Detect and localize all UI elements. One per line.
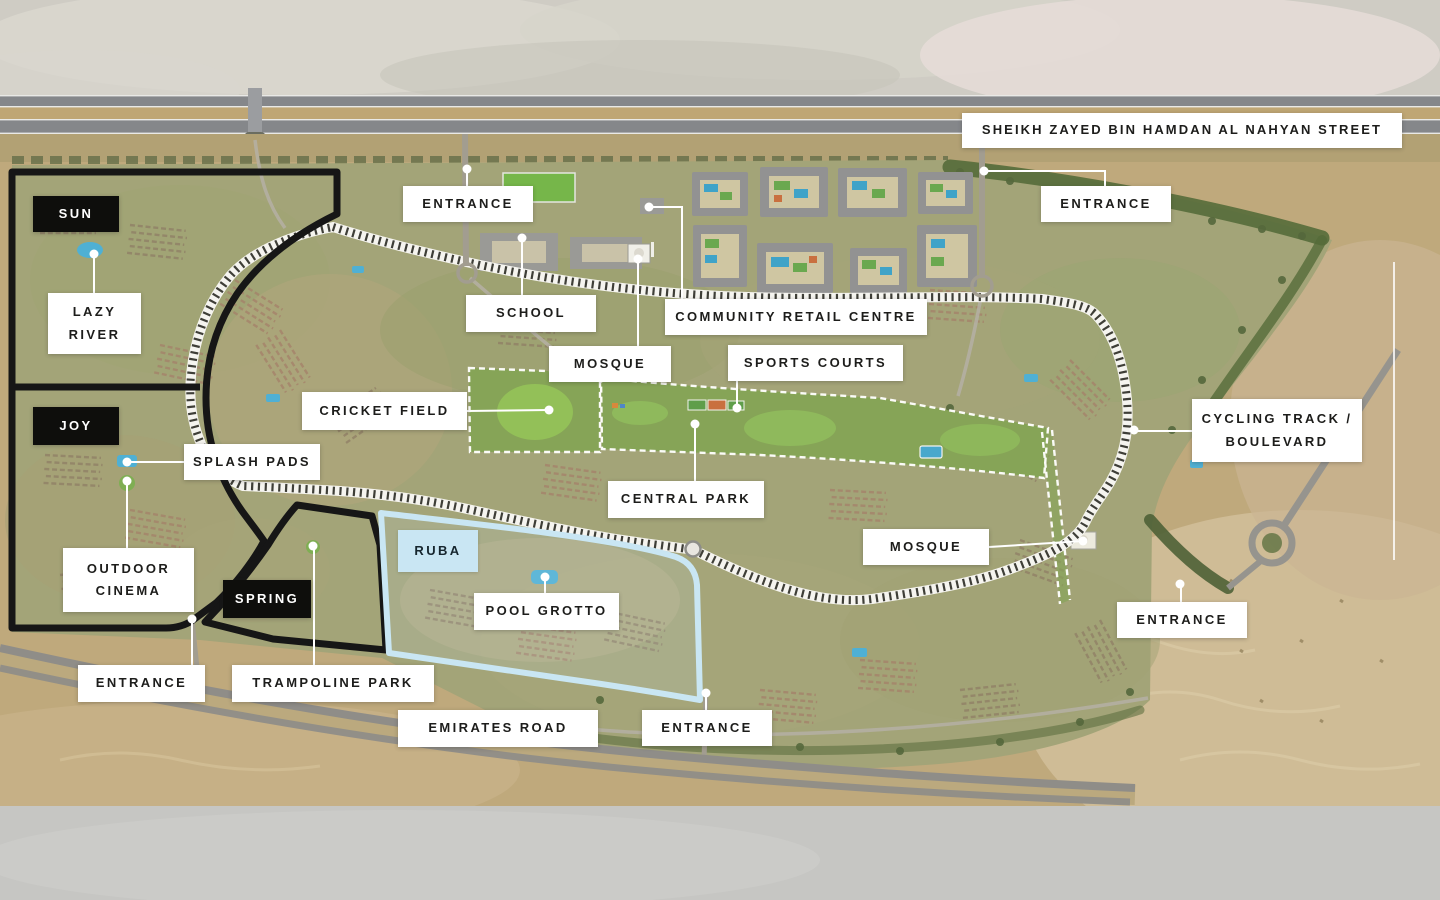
mosque-building-north (628, 242, 654, 263)
label-entrance-south: ENTRANCE (642, 710, 772, 746)
label-cricket-field: CRICKET FIELD (302, 392, 467, 430)
label-community-retail-centre: COMMUNITY RETAIL CENTRE (665, 299, 927, 335)
label-lazy-river: LAZY RIVER (48, 293, 141, 354)
label-central-park: CENTRAL PARK (608, 481, 764, 518)
label-district-sun: SUN (33, 196, 119, 232)
label-sheikh-zayed-street: SHEIKH ZAYED BIN HAMDAN AL NAHYAN STREET (962, 113, 1402, 148)
label-mosque-east: MOSQUE (863, 529, 989, 565)
label-outdoor-cinema: OUTDOOR CINEMA (63, 548, 194, 612)
label-mosque-north: MOSQUE (549, 346, 671, 382)
label-splash-pads: SPLASH PADS (184, 444, 320, 480)
label-district-spring: SPRING (223, 580, 311, 618)
label-entrance-east: ENTRANCE (1117, 602, 1247, 638)
label-entrance-southwest: ENTRANCE (78, 665, 205, 702)
label-emirates-road: EMIRATES ROAD (398, 710, 598, 747)
master-plan-map: SHEIKH ZAYED BIN HAMDAN AL NAHYAN STREET… (0, 0, 1440, 900)
label-district-joy: JOY (33, 407, 119, 445)
label-cycling-track-boulevard: CYCLING TRACK / BOULEVARD (1192, 399, 1362, 462)
label-school: SCHOOL (466, 295, 596, 332)
label-district-ruba: RUBA (398, 530, 478, 572)
label-entrance-northwest: ENTRANCE (403, 186, 533, 222)
label-sports-courts: SPORTS COURTS (728, 345, 903, 381)
label-trampoline-park: TRAMPOLINE PARK (232, 665, 434, 702)
label-entrance-northeast: ENTRANCE (1041, 186, 1171, 222)
label-pool-grotto: POOL GROTTO (474, 593, 619, 630)
